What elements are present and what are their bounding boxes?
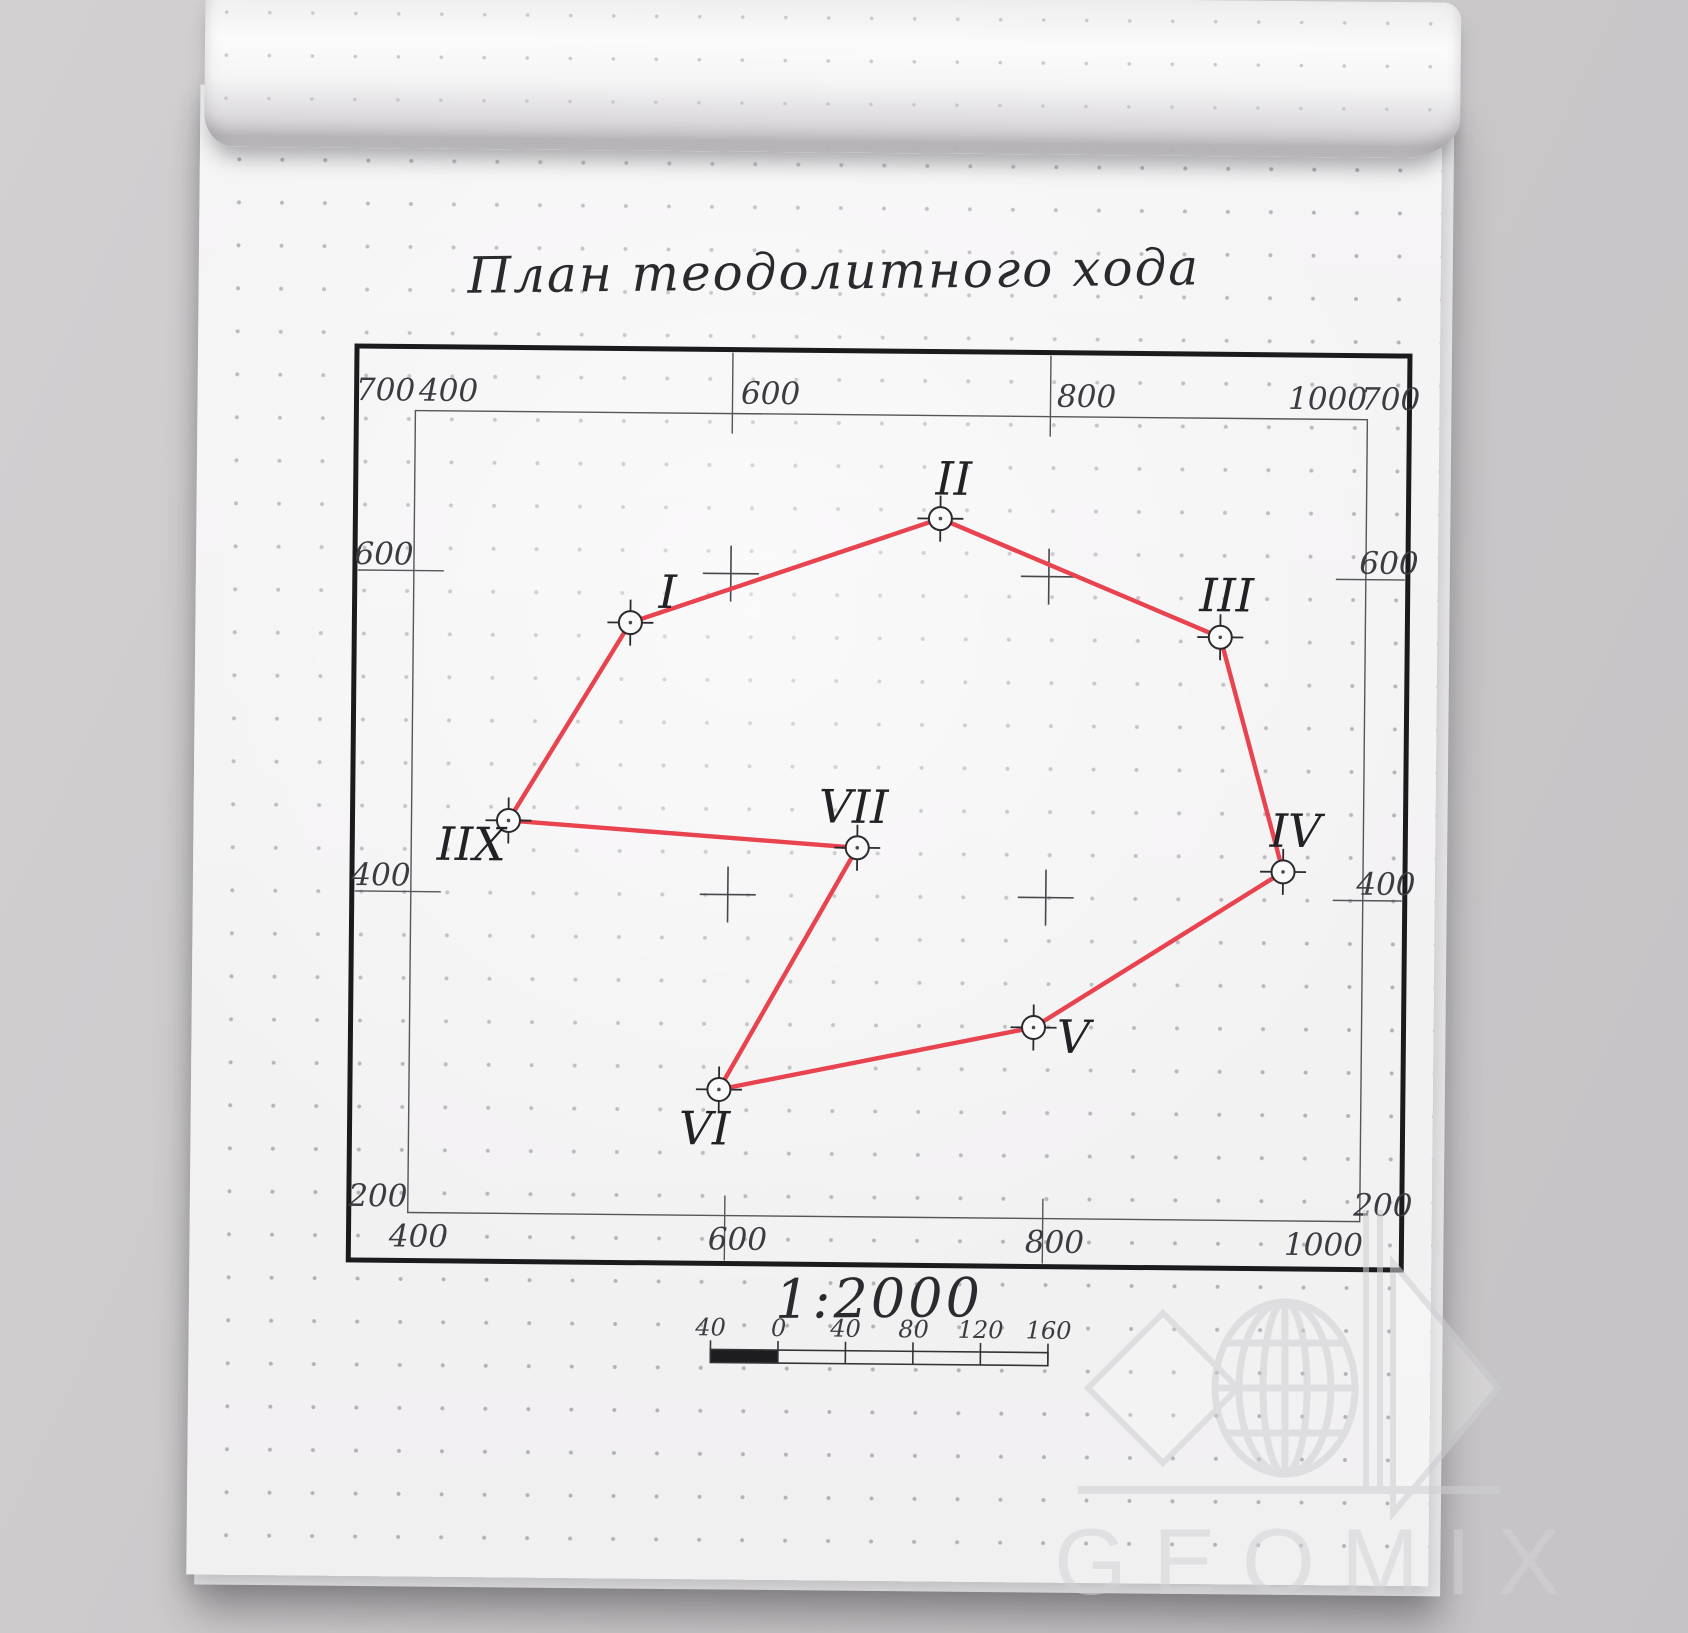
station-center-dot [939, 517, 943, 521]
grid-label: 400 [350, 857, 411, 894]
station-center-dot [1032, 1026, 1036, 1030]
station-label: II [934, 452, 973, 506]
station-center-dot [855, 846, 859, 850]
grid-label: 400 [1355, 867, 1416, 904]
station-center-dot [507, 819, 511, 823]
station-label: III [1198, 568, 1255, 623]
scale-bar-filled-segment [710, 1349, 778, 1363]
grid-label: 700 [356, 372, 416, 409]
plan-title: План теодолитного хода [467, 238, 1200, 304]
traverse-line [506, 514, 1286, 1094]
scale-bar-label: 40 [694, 1313, 726, 1341]
station-label: I [657, 565, 678, 619]
station-label: VI [679, 1101, 732, 1155]
page-curl [204, 0, 1461, 159]
watermark-text: GEOMIX [1028, 1508, 1548, 1616]
grid-cross [731, 546, 732, 602]
globe-icon [1215, 1302, 1355, 1474]
station-center-dot [1218, 635, 1222, 639]
geomix-watermark: GEOMIX [1028, 1168, 1548, 1630]
grid-label: 600 [1359, 546, 1419, 583]
station-label: IIX [435, 817, 508, 872]
grid-cross [1046, 870, 1047, 926]
station-center-dot [629, 621, 633, 625]
grid-cross [728, 867, 729, 923]
station-label: IV [1268, 804, 1326, 859]
grid-label: 600 [708, 1221, 768, 1258]
grid-label: 400 [388, 1218, 449, 1255]
photo-backdrop: 7004006008001000700400600800100060040020… [0, 0, 1688, 1633]
grid-label: 1000 [1288, 381, 1367, 418]
grid-label: 400 [418, 373, 479, 410]
grid-label: 800 [1057, 379, 1117, 416]
grid-label: 200 [347, 1178, 408, 1215]
station-center-dot [1281, 870, 1285, 874]
grid-tick [732, 353, 733, 434]
station-label: V [1057, 1010, 1096, 1064]
grid-cross [1049, 549, 1050, 605]
scale-ratio-label: 1:2000 [775, 1266, 983, 1331]
grid-label: 600 [354, 536, 414, 573]
logo-triangle [1393, 1263, 1498, 1513]
station-center-dot [717, 1088, 721, 1092]
grid-label: 600 [741, 376, 801, 413]
grid-tick [1050, 356, 1051, 437]
grid-label: 700 [1361, 382, 1421, 419]
station-label: VII [819, 779, 890, 834]
